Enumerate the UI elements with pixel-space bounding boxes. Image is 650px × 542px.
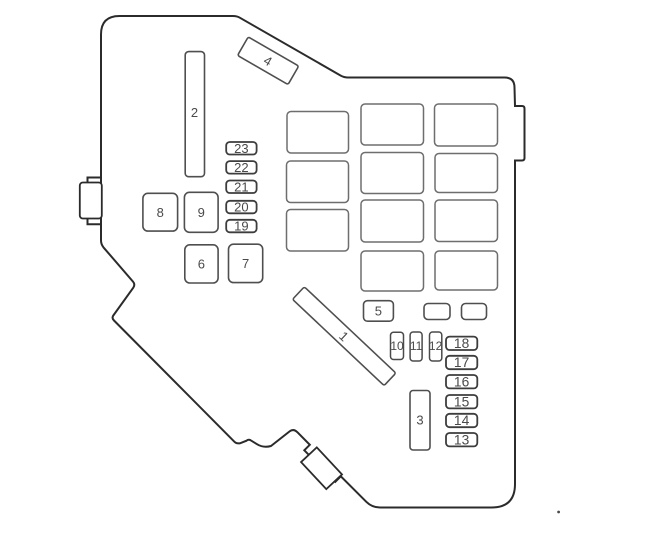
svg-text:17: 17 — [454, 355, 469, 370]
svg-text:3: 3 — [416, 413, 423, 428]
svg-text:9: 9 — [198, 205, 205, 220]
svg-text:5: 5 — [375, 304, 382, 319]
svg-text:12: 12 — [429, 339, 443, 353]
svg-text:23: 23 — [234, 141, 248, 156]
svg-text:11: 11 — [410, 339, 423, 353]
svg-text:13: 13 — [454, 432, 470, 447]
svg-text:8: 8 — [157, 205, 164, 220]
svg-text:10: 10 — [390, 339, 404, 353]
svg-text:16: 16 — [454, 374, 470, 389]
svg-text:6: 6 — [198, 257, 205, 272]
svg-text:15: 15 — [454, 394, 470, 409]
svg-text:2: 2 — [191, 105, 198, 120]
svg-text:22: 22 — [234, 160, 248, 175]
svg-text:4: 4 — [261, 53, 275, 70]
svg-text:18: 18 — [454, 336, 470, 351]
svg-text:21: 21 — [234, 179, 248, 194]
svg-text:20: 20 — [234, 200, 248, 215]
svg-text:14: 14 — [454, 413, 470, 428]
svg-text:7: 7 — [242, 256, 249, 271]
svg-text:19: 19 — [234, 219, 248, 234]
